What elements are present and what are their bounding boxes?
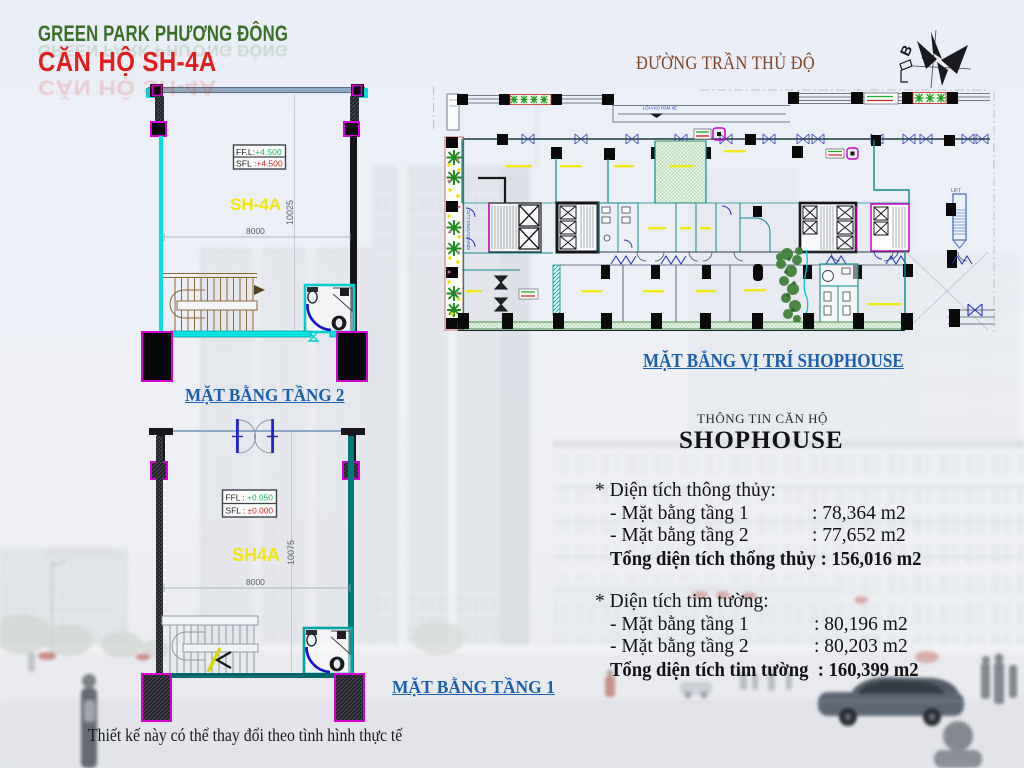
svg-text:FF.L:+4.500: FF.L:+4.500: [236, 147, 282, 157]
svg-text:KÍNH CƯỜNG LỰC: KÍNH CƯỜNG LỰC: [465, 209, 471, 250]
svg-text:10075: 10075: [286, 540, 296, 565]
svg-text:LIFT: LIFT: [951, 188, 961, 194]
svg-text:FFL : +0.050: FFL : +0.050: [226, 493, 274, 503]
svg-text:SH-4A: SH-4A: [230, 195, 281, 214]
svg-text:SFL :+4.500: SFL :+4.500: [236, 159, 283, 169]
svg-text:8000: 8000: [246, 226, 265, 236]
svg-text:8000: 8000: [246, 577, 265, 587]
svg-text:10025: 10025: [285, 200, 295, 225]
svg-text:B: B: [897, 42, 916, 58]
svg-text:SH4A: SH4A: [232, 545, 280, 565]
svg-text:SFL : ±0.000: SFL : ±0.000: [226, 506, 274, 516]
svg-text:LỐI VÀO HẦM XE: LỐI VÀO HẦM XE: [643, 106, 677, 111]
